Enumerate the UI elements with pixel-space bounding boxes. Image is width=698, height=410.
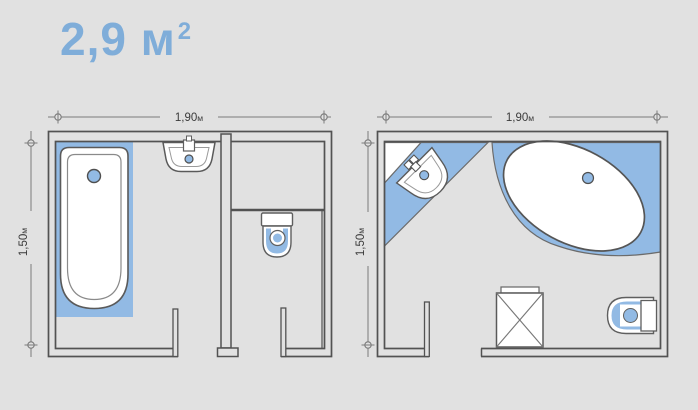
dimension-width-label: 1,90м	[506, 112, 534, 124]
toilet-tank	[641, 301, 657, 332]
dimension-width-label: 1,90м	[175, 112, 203, 124]
dimension-height: 1,50м	[355, 131, 375, 357]
dimension-height-label: 1,50м	[18, 228, 30, 256]
wc-door-leaf	[281, 308, 286, 357]
area-value: 2,9	[60, 13, 127, 65]
toilet-tank	[262, 213, 293, 226]
toilet	[262, 213, 293, 257]
dimension-height-label: 1,50м	[355, 228, 367, 256]
dimension-height: 1,50м	[18, 131, 38, 357]
dimension-width: 1,90м	[377, 111, 668, 125]
washing-machine	[497, 287, 544, 347]
toilet	[608, 298, 657, 334]
bathroom-door-leaf	[425, 302, 430, 357]
partition-wall	[221, 134, 231, 348]
washing-machine-panel	[501, 287, 539, 293]
partition-wall-foot	[218, 348, 239, 357]
bathtub-drain-dot	[583, 173, 594, 184]
floor-plan-left: 1,90м 1,50м	[18, 111, 332, 359]
toilet-drain-dot	[273, 234, 282, 243]
dimension-width: 1,90м	[48, 111, 331, 125]
bathtub-drain-dot	[88, 170, 101, 183]
washbasin-faucet-tap	[187, 136, 192, 141]
area-superscript: 2	[178, 18, 192, 45]
washbasin-faucet	[184, 140, 195, 151]
bathroom-floorplan-image: 2,9 м2	[0, 0, 698, 405]
toilet-drain-dot	[624, 309, 638, 323]
bathroom-door-leaf	[173, 309, 178, 357]
washbasin-drain-dot	[185, 155, 193, 163]
floor-plan-right: 1,90м 1,50м	[355, 111, 668, 359]
area-title: 2,9 м2	[60, 14, 192, 65]
bathtub	[61, 148, 129, 309]
door-opening	[429, 344, 481, 359]
area-unit: м	[141, 13, 176, 65]
